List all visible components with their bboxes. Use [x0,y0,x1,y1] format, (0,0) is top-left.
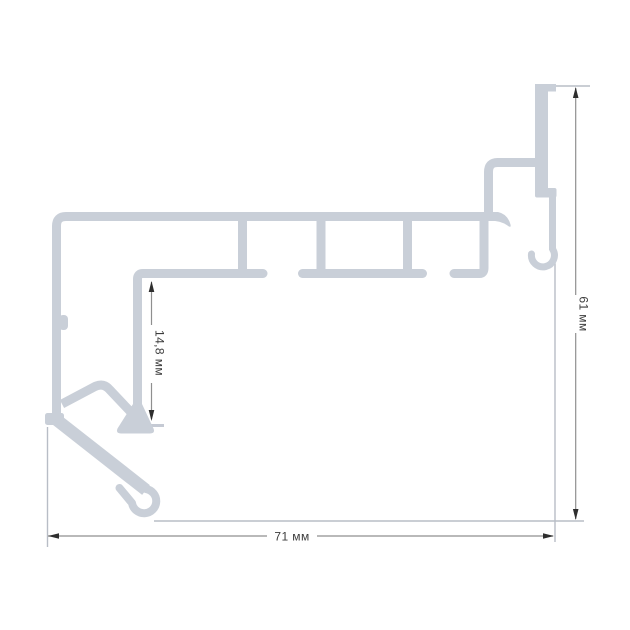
profile-drawing-svg: 71 мм 61 мм 14,8 мм [0,0,630,630]
arrowhead-up-icon [573,87,579,98]
profile-top-bar-left-wall [57,217,499,416]
profile-wall-bump [59,315,68,330]
profile-hook-bottom [120,488,157,513]
dimension-height: 61 мм [573,87,591,520]
arrowhead-left-icon [48,533,59,539]
dimension-flange: 14,8 мм [149,281,167,421]
profile-outline [45,84,557,513]
dimension-width: 71 мм [48,530,554,544]
profile-hook-right [531,249,554,267]
profile-shelf-c-hanger [454,221,484,274]
profile-riser-arm [489,163,539,216]
profile-strut [62,385,136,417]
profile-shaft-cap [535,84,556,92]
dimension-width-label: 71 мм [274,530,309,544]
dimension-flange-label: 14,8 мм [153,330,167,376]
arrowhead-right-icon [543,533,554,539]
arrowhead-down-icon [573,509,579,520]
arrowhead-up-icon [149,281,155,292]
dimension-height-label: 61 мм [577,296,591,331]
drawing-canvas: 71 мм 61 мм 14,8 мм [0,0,630,630]
arrowhead-down-icon [149,410,155,421]
